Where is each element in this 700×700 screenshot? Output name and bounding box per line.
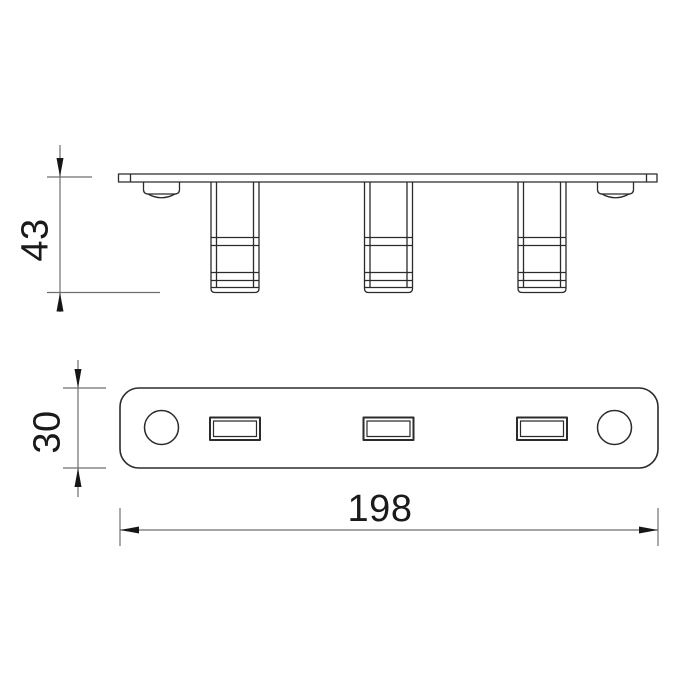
dimension-plate-length: 198 — [120, 488, 658, 546]
dimension-lines — [63, 360, 106, 497]
front-elevation-view — [119, 174, 658, 293]
hook-profile-3 — [518, 182, 566, 293]
plate-face — [120, 388, 658, 468]
plan-view — [120, 388, 658, 468]
dim-arrow-right — [639, 527, 658, 534]
dimension-value-43: 43 — [14, 218, 56, 261]
hook-profile-2 — [365, 182, 413, 293]
dimension-value-30: 30 — [26, 410, 68, 453]
slot-inner-edge — [214, 421, 257, 437]
dim-arrow-left — [120, 527, 139, 534]
round-hole-right — [598, 411, 632, 445]
dim-arrow-up — [75, 468, 82, 487]
dim-arrow-up — [57, 293, 64, 312]
round-hole-left — [145, 411, 179, 445]
dimension-lines — [47, 145, 160, 312]
dimple-profile-left — [144, 182, 180, 198]
plate-profile — [119, 174, 658, 182]
slot-2 — [364, 418, 414, 441]
dimension-value-198: 198 — [348, 488, 413, 530]
dimple-outline — [144, 182, 180, 194]
dim-arrow-down — [57, 158, 64, 177]
drawing-canvas: 43 30 198 — [0, 0, 700, 700]
slot-1 — [210, 418, 260, 441]
slot-inner-edge — [521, 421, 564, 437]
technical-drawing: 43 30 198 — [0, 0, 700, 700]
dimple-outline — [598, 182, 634, 194]
dim-arrow-down — [75, 369, 82, 388]
slot-inner-edge — [367, 421, 410, 437]
dimple-profile-right — [598, 182, 634, 198]
hook-profile-1 — [211, 182, 259, 293]
dimension-plate-width: 30 — [26, 360, 106, 497]
dimension-side-height: 43 — [14, 145, 160, 312]
slot-3 — [517, 418, 567, 441]
